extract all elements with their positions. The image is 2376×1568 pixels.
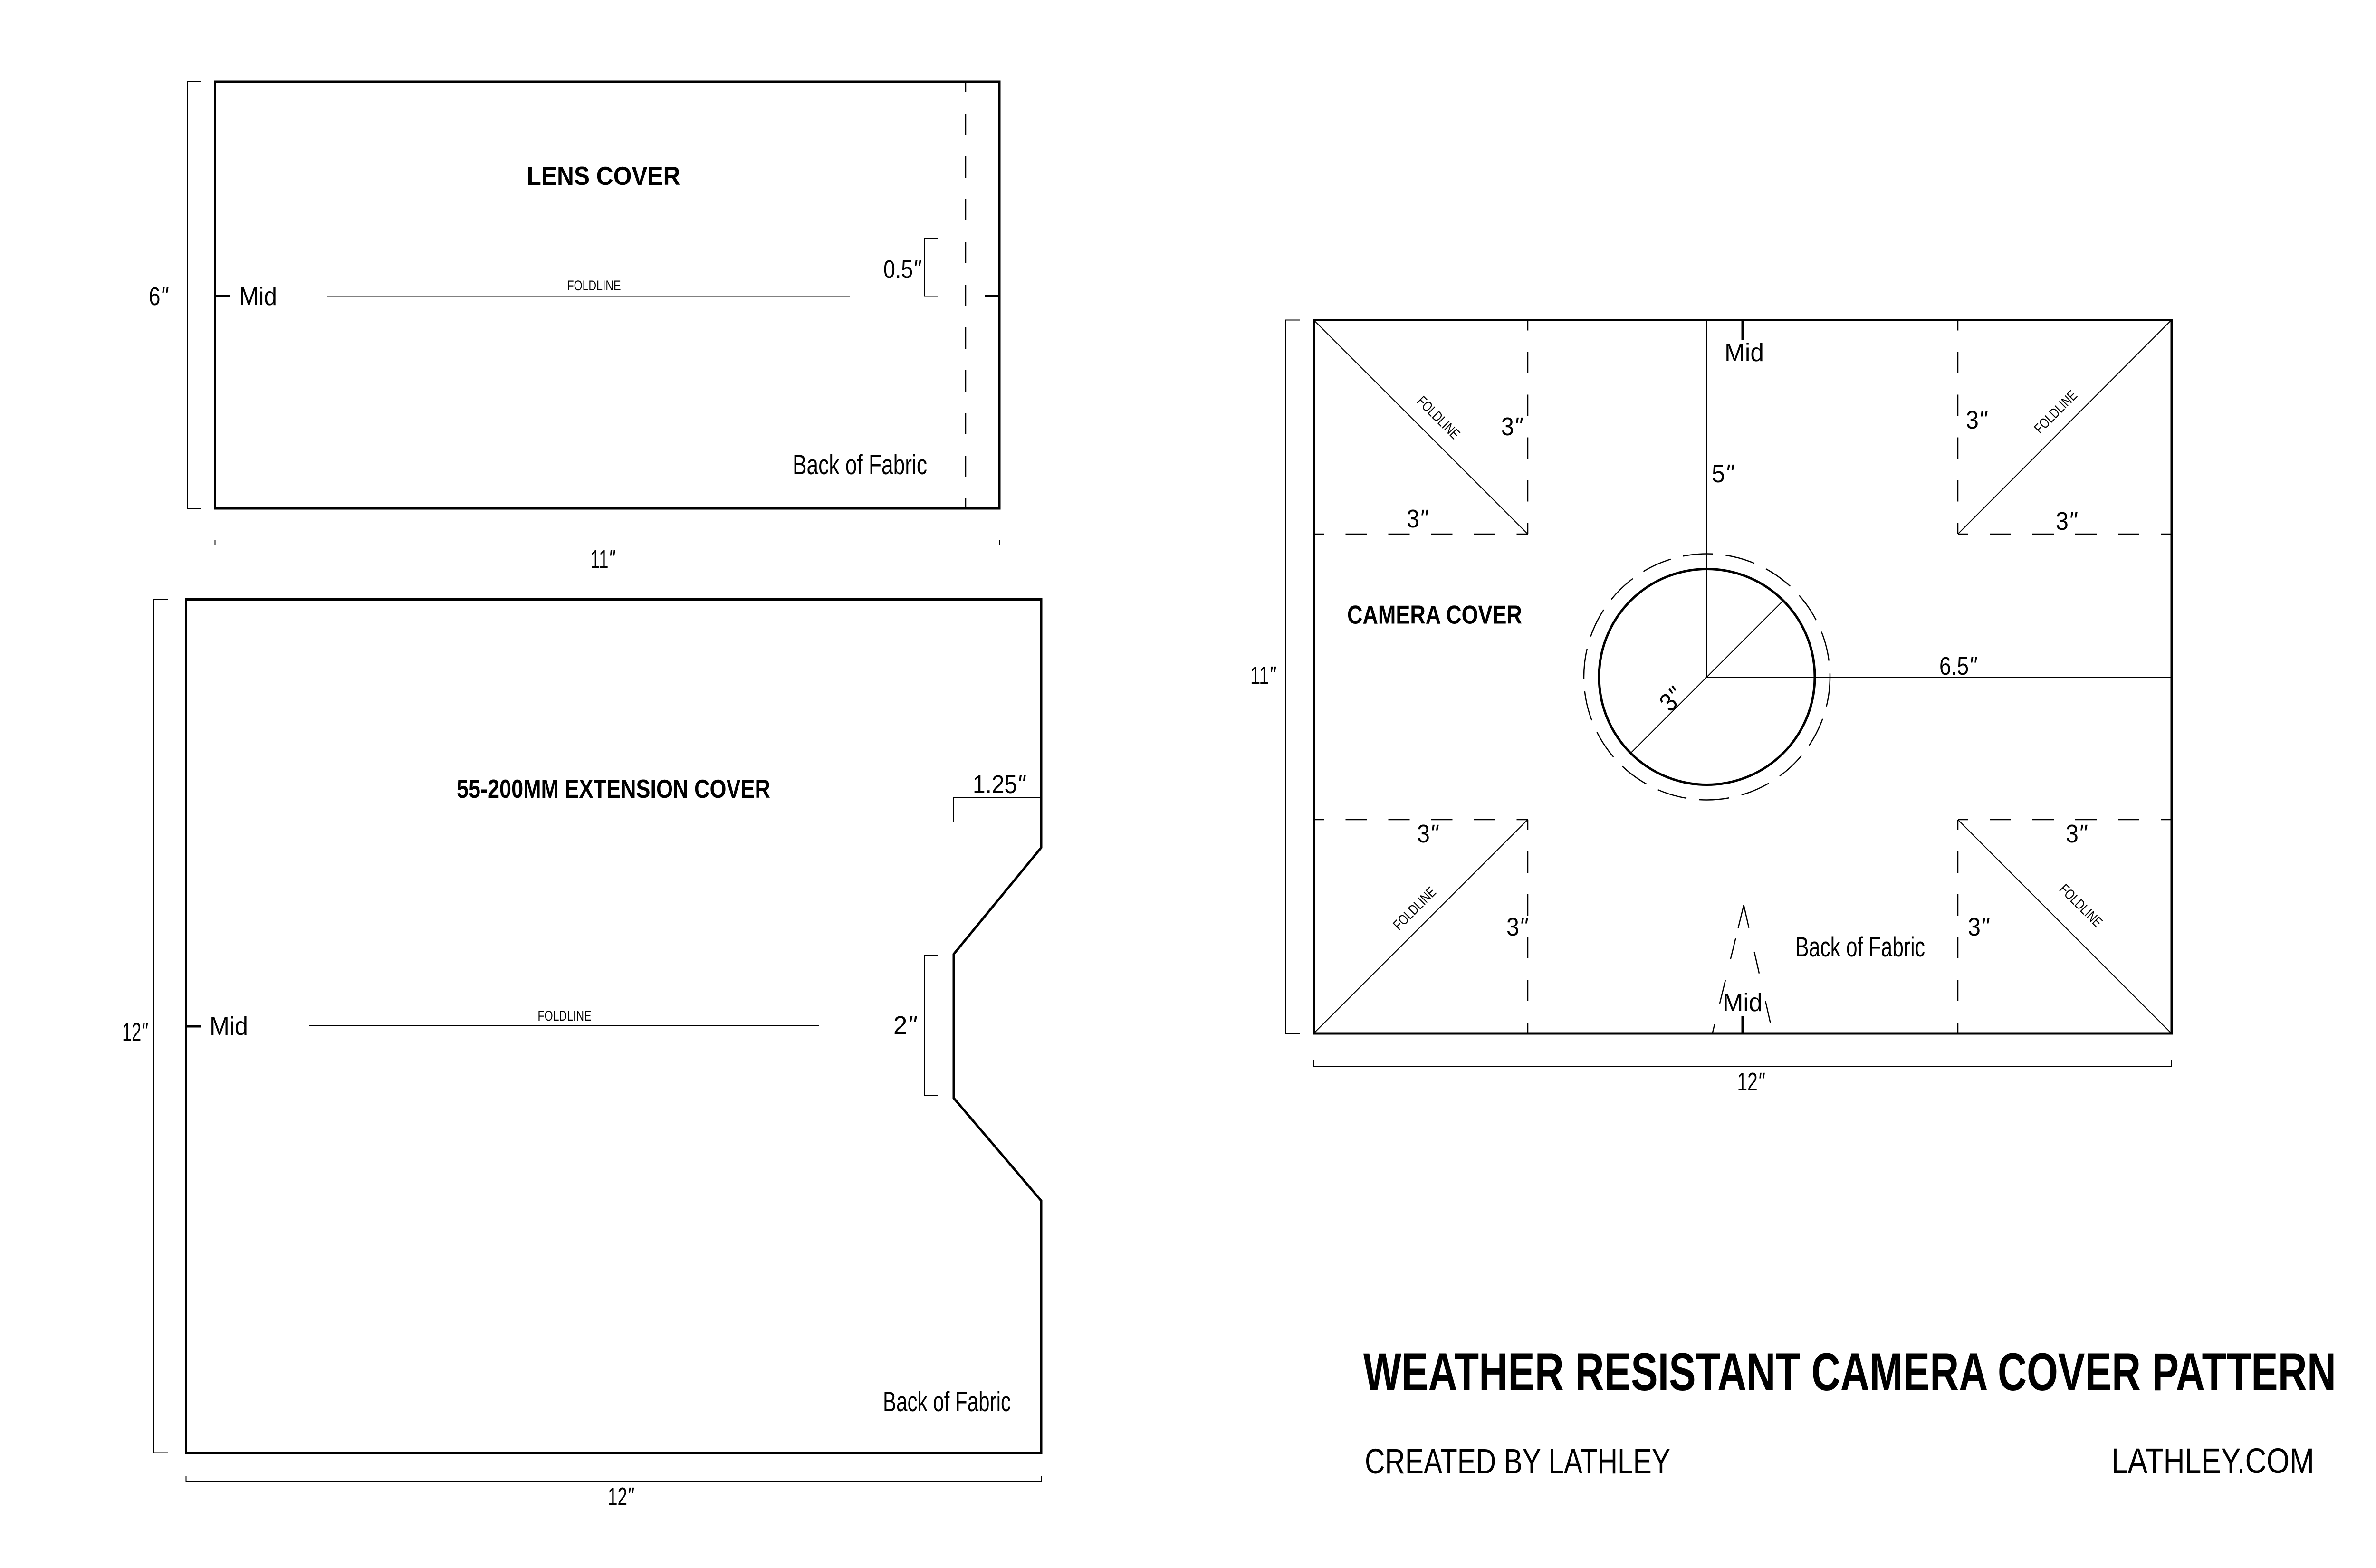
svg-text:6.5": 6.5" <box>1939 652 1977 680</box>
svg-text:2": 2" <box>893 1011 918 1040</box>
svg-text:Back of Fabric: Back of Fabric <box>793 449 927 480</box>
svg-text:CREATED BY LATHLEY: CREATED BY LATHLEY <box>1365 1442 1670 1481</box>
svg-text:3": 3" <box>2056 507 2078 535</box>
svg-text:12": 12" <box>1737 1068 1765 1096</box>
svg-text:5": 5" <box>1712 459 1735 488</box>
svg-text:11": 11" <box>1250 661 1276 690</box>
svg-text:55-200MM EXTENSION COVER: 55-200MM EXTENSION COVER <box>457 774 770 803</box>
svg-text:11": 11" <box>591 545 616 574</box>
svg-text:0.5": 0.5" <box>883 255 921 284</box>
svg-text:12": 12" <box>122 1018 148 1046</box>
svg-text:FOLDLINE: FOLDLINE <box>538 1008 592 1024</box>
svg-text:CAMERA COVER: CAMERA COVER <box>1347 600 1522 630</box>
svg-text:Mid: Mid <box>239 282 277 311</box>
svg-text:Back of Fabric: Back of Fabric <box>883 1386 1011 1417</box>
svg-text:3": 3" <box>1501 412 1523 441</box>
svg-text:3": 3" <box>1506 913 1529 941</box>
svg-text:LATHLEY.COM: LATHLEY.COM <box>2111 1441 2314 1481</box>
svg-text:Mid: Mid <box>1725 338 1764 367</box>
svg-text:3": 3" <box>1407 505 1429 533</box>
svg-text:Back of Fabric: Back of Fabric <box>1795 932 1925 963</box>
svg-text:6": 6" <box>149 282 169 311</box>
svg-text:1.25": 1.25" <box>973 770 1026 799</box>
svg-text:3": 3" <box>2066 820 2088 848</box>
svg-text:3": 3" <box>1968 913 1990 941</box>
svg-text:12": 12" <box>608 1482 634 1511</box>
svg-text:LENS COVER: LENS COVER <box>527 161 680 191</box>
svg-text:FOLDLINE: FOLDLINE <box>567 278 621 294</box>
svg-text:3": 3" <box>1966 406 1988 434</box>
svg-text:3": 3" <box>1417 820 1439 848</box>
svg-text:Mid: Mid <box>210 1012 248 1041</box>
svg-text:Mid: Mid <box>1723 988 1763 1017</box>
svg-text:WEATHER RESISTANT CAMERA COVER: WEATHER RESISTANT CAMERA COVER PATTERN <box>1363 1342 2336 1402</box>
